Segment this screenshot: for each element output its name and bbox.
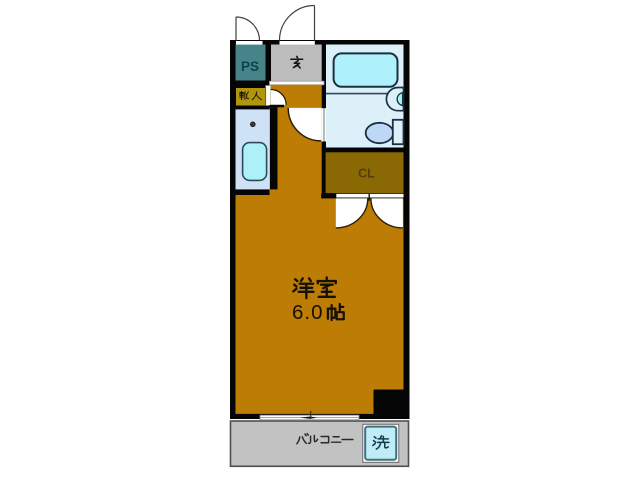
svg-text:6.0: 6.0 [292,301,324,324]
svg-text:CL: CL [358,167,375,181]
svg-text:PS: PS [241,59,259,74]
